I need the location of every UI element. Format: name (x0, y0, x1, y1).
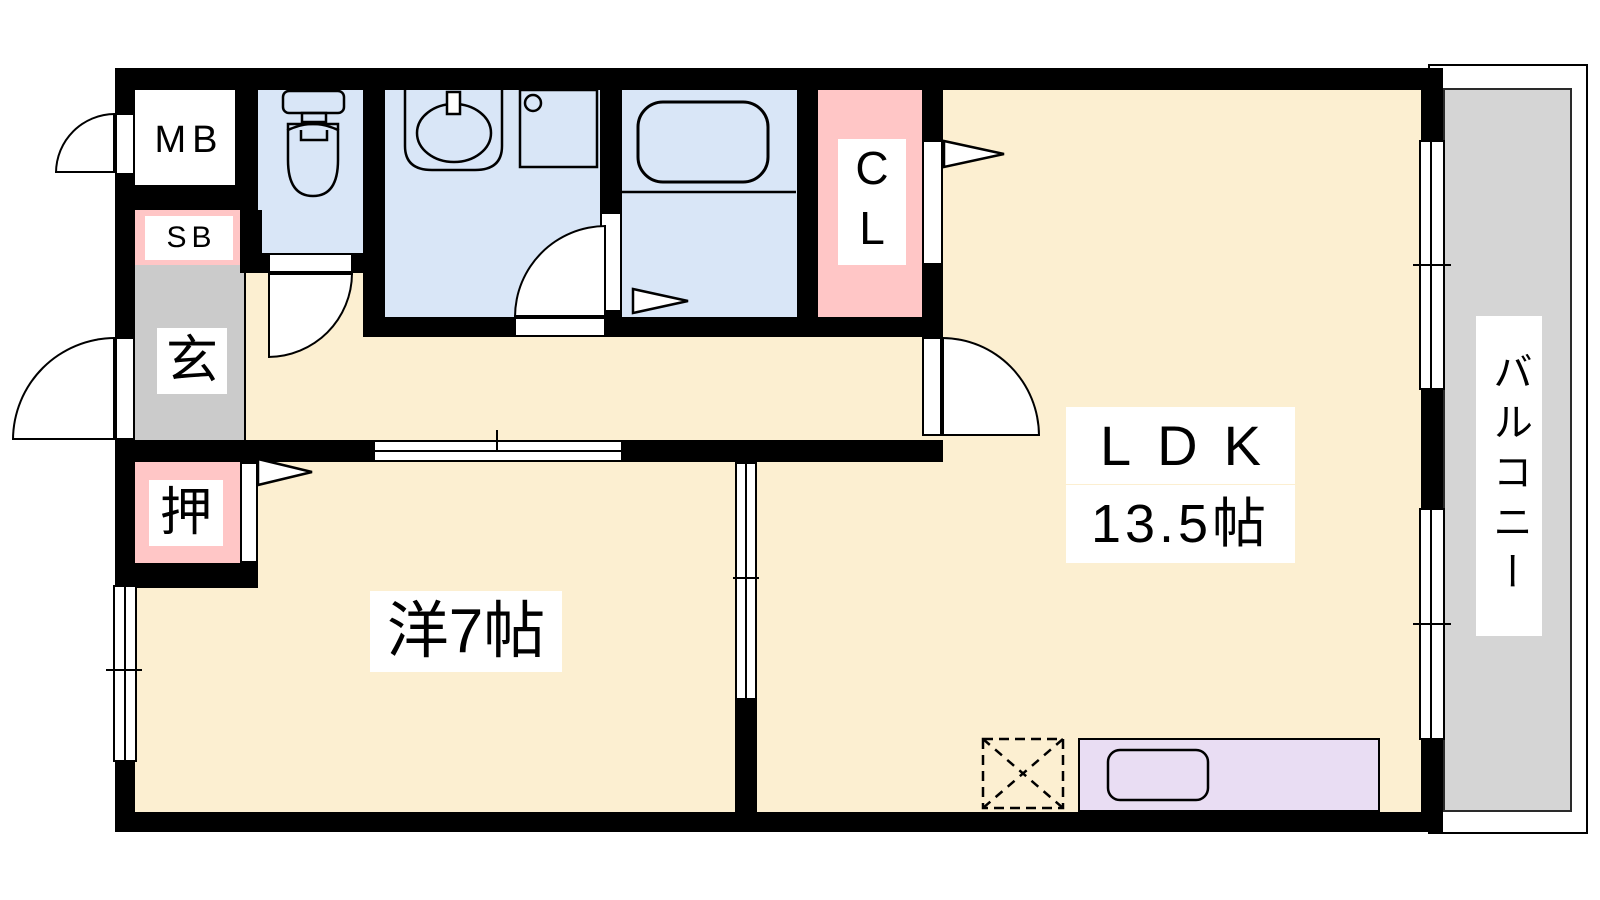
label-balcony: バルコニー (1476, 316, 1542, 636)
label-ldk-size: 13.5帖 (1066, 485, 1295, 563)
label-oshiire: 押 (149, 480, 223, 546)
fixtures-layer (0, 0, 1600, 900)
label-entrance: 玄 (157, 328, 227, 394)
oshiire-door-arrow (258, 459, 312, 485)
label-meter-box: MB (146, 112, 226, 167)
washing-machine-icon (520, 90, 597, 167)
cl-door-arrow (944, 141, 1004, 167)
floor-plan: MB SB 玄 押 CL LDK 13.5帖 洋7帖 バルコニー (0, 0, 1600, 900)
kitchen-sink-icon (1108, 750, 1208, 800)
label-western-room: 洋7帖 (370, 591, 562, 672)
refrigerator-space-icon (983, 739, 1063, 808)
toilet-icon (283, 91, 344, 196)
label-ldk: LDK (1066, 407, 1295, 484)
bathroom-door-arrow (633, 289, 688, 313)
label-shoe-box: SB (145, 216, 233, 260)
bathtub-icon (622, 102, 796, 192)
label-closet-cl: CL (838, 139, 906, 265)
washbasin-icon (405, 90, 502, 170)
